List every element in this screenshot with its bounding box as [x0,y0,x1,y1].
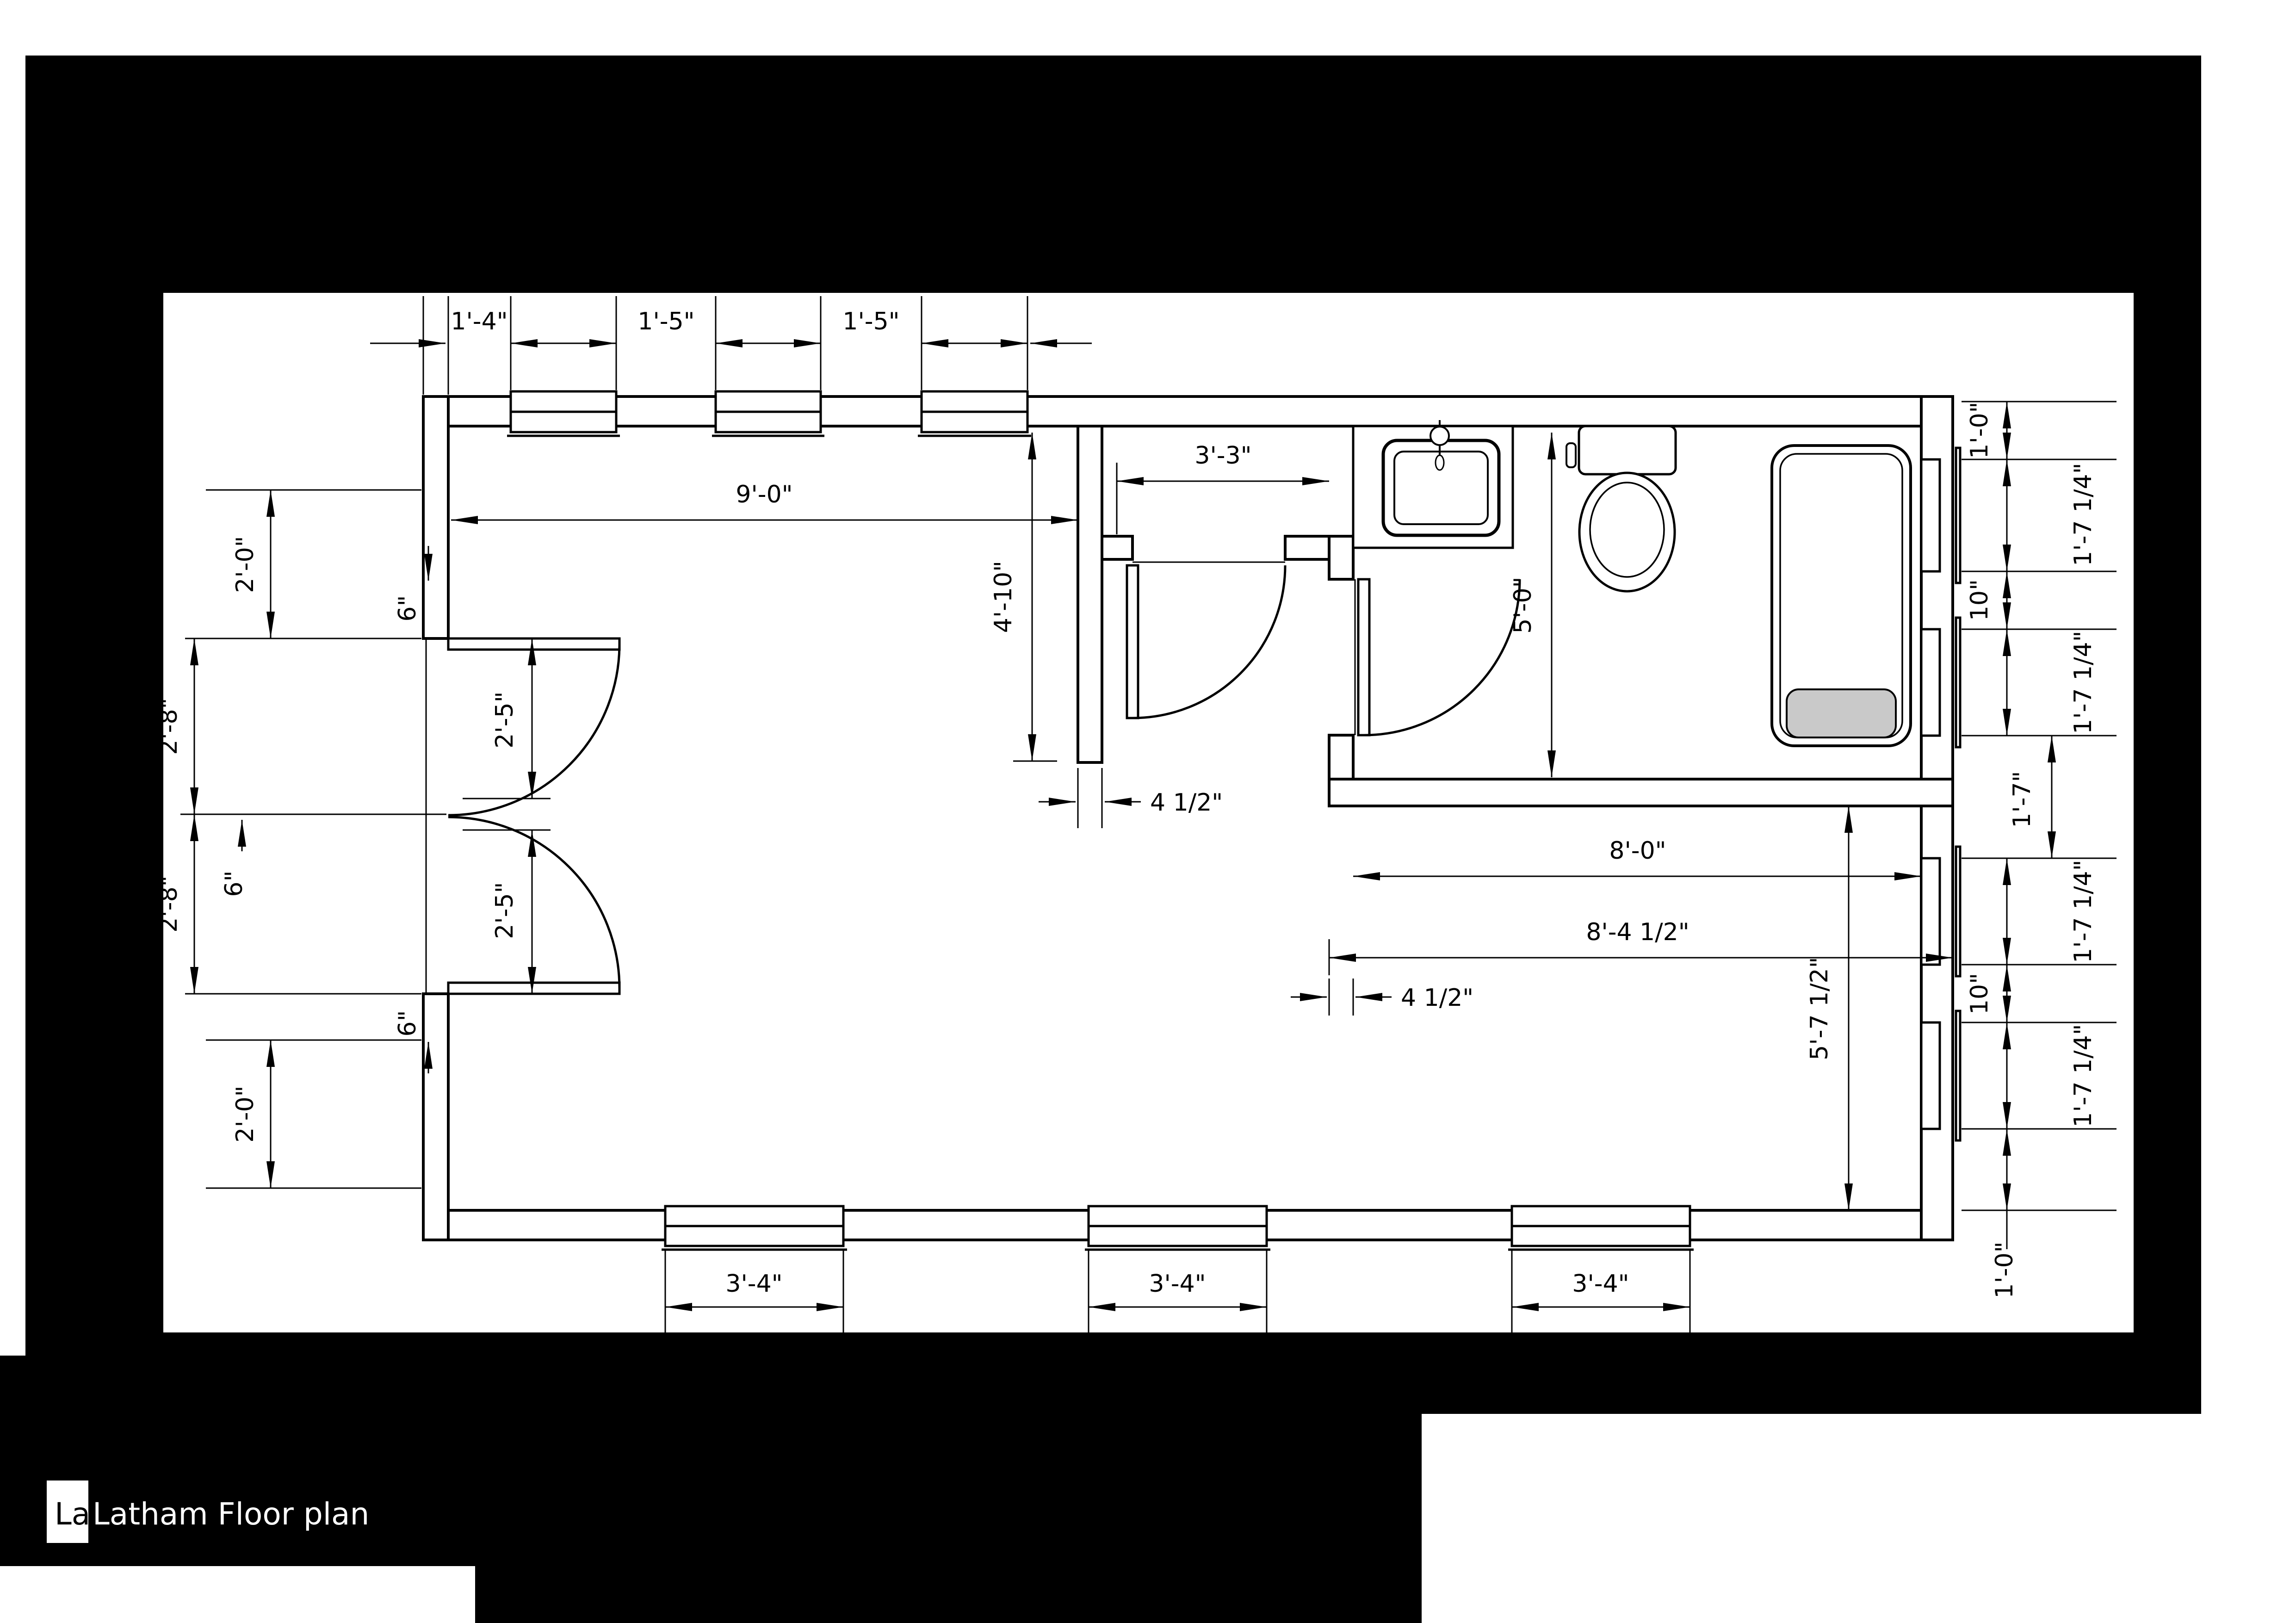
dim-label: 1'-0" [1966,402,1993,458]
dim-label: 2'-0" [231,536,259,593]
dim-label: 2'-8" [155,875,183,932]
hallway-door [1127,565,1285,718]
dimensions-bottom: 3'-4" 3'-4" 3'-4" [665,1249,1690,1332]
dim-label: 10" [1966,579,1993,621]
dim-label: 3'-4" [725,1270,782,1298]
dim-label: 3'-4" [1149,1270,1206,1298]
dim-label: 6" [394,595,421,621]
dim-label: 1'-0" [1991,1241,2018,1298]
bathroom-door [1358,579,1520,735]
dim-label: 1'-7 1/4" [2069,860,2097,963]
dim-label: 9'-0" [736,481,792,508]
dim-label: 5'-0" [1509,576,1537,633]
floor-plan-drawing: 1'-4" 1'-5" 1'-5" 3'-4" 3'-4" 3'-4" [0,0,2296,1623]
dimensions-left: 2'-0" 2'-8" 2'-8" 2'-0" 6" 6" 6" 2'-5" 2… [155,490,551,1188]
dim-label: 2'-8" [155,698,183,755]
dim-label: 3'-3" [1194,442,1251,470]
dim-label: 1'-7 1/4" [2069,1024,2097,1127]
dim-label: 1'-5" [637,308,694,335]
dim-label: 6" [220,870,248,897]
sink-icon [1383,440,1499,535]
dim-label: 1'-5" [842,308,899,335]
app-window: 1'-4" 1'-5" 1'-5" 3'-4" 3'-4" 3'-4" [0,0,2296,1623]
toilet-icon [1566,426,1676,591]
dim-label: 2'-5" [491,691,519,748]
dim-label: 1'-7 1/4" [2069,631,2097,734]
dim-label: 4'-10" [990,561,1017,633]
dim-label: 1'-4" [451,308,507,335]
dim-label: 8'-0" [1609,837,1666,865]
dim-label: 4 1/2" [1150,789,1223,817]
dimensions-right: 1'-0" 1'-7 1/4" 10" 1'-7 1/4" 1'-7 1/4" … [1962,402,2117,1299]
dim-label: 1'-7" [2008,771,2036,828]
dim-label: 3'-4" [1572,1270,1629,1298]
dim-label: 6" [394,1010,421,1036]
exterior-walls [423,396,1953,1240]
bathtub-icon [1772,446,1911,746]
entry-double-doors [448,638,619,994]
dim-label: 2'-5" [491,882,519,939]
windows-top-wall [507,391,1031,436]
windows-bottom-wall [662,1206,1694,1250]
dim-label: 4 1/2" [1401,984,1473,1012]
dimensions-interior: 9'-0" 3'-3" 4'-10" 5'-0" 4 1/2" 8'-0" 8'… [451,433,1953,1210]
dim-label: 8'-4 1/2" [1586,918,1689,946]
page-title: Latham Floor plan [93,1499,369,1530]
dim-label: 5'-7 1/2" [1806,957,1833,1060]
dimensions-top: 1'-4" 1'-5" 1'-5" [370,296,1092,395]
dim-label: 10" [1966,973,1993,1015]
dim-label: 1'-7 1/4" [2069,463,2097,566]
dim-label: 2'-0" [231,1085,259,1142]
